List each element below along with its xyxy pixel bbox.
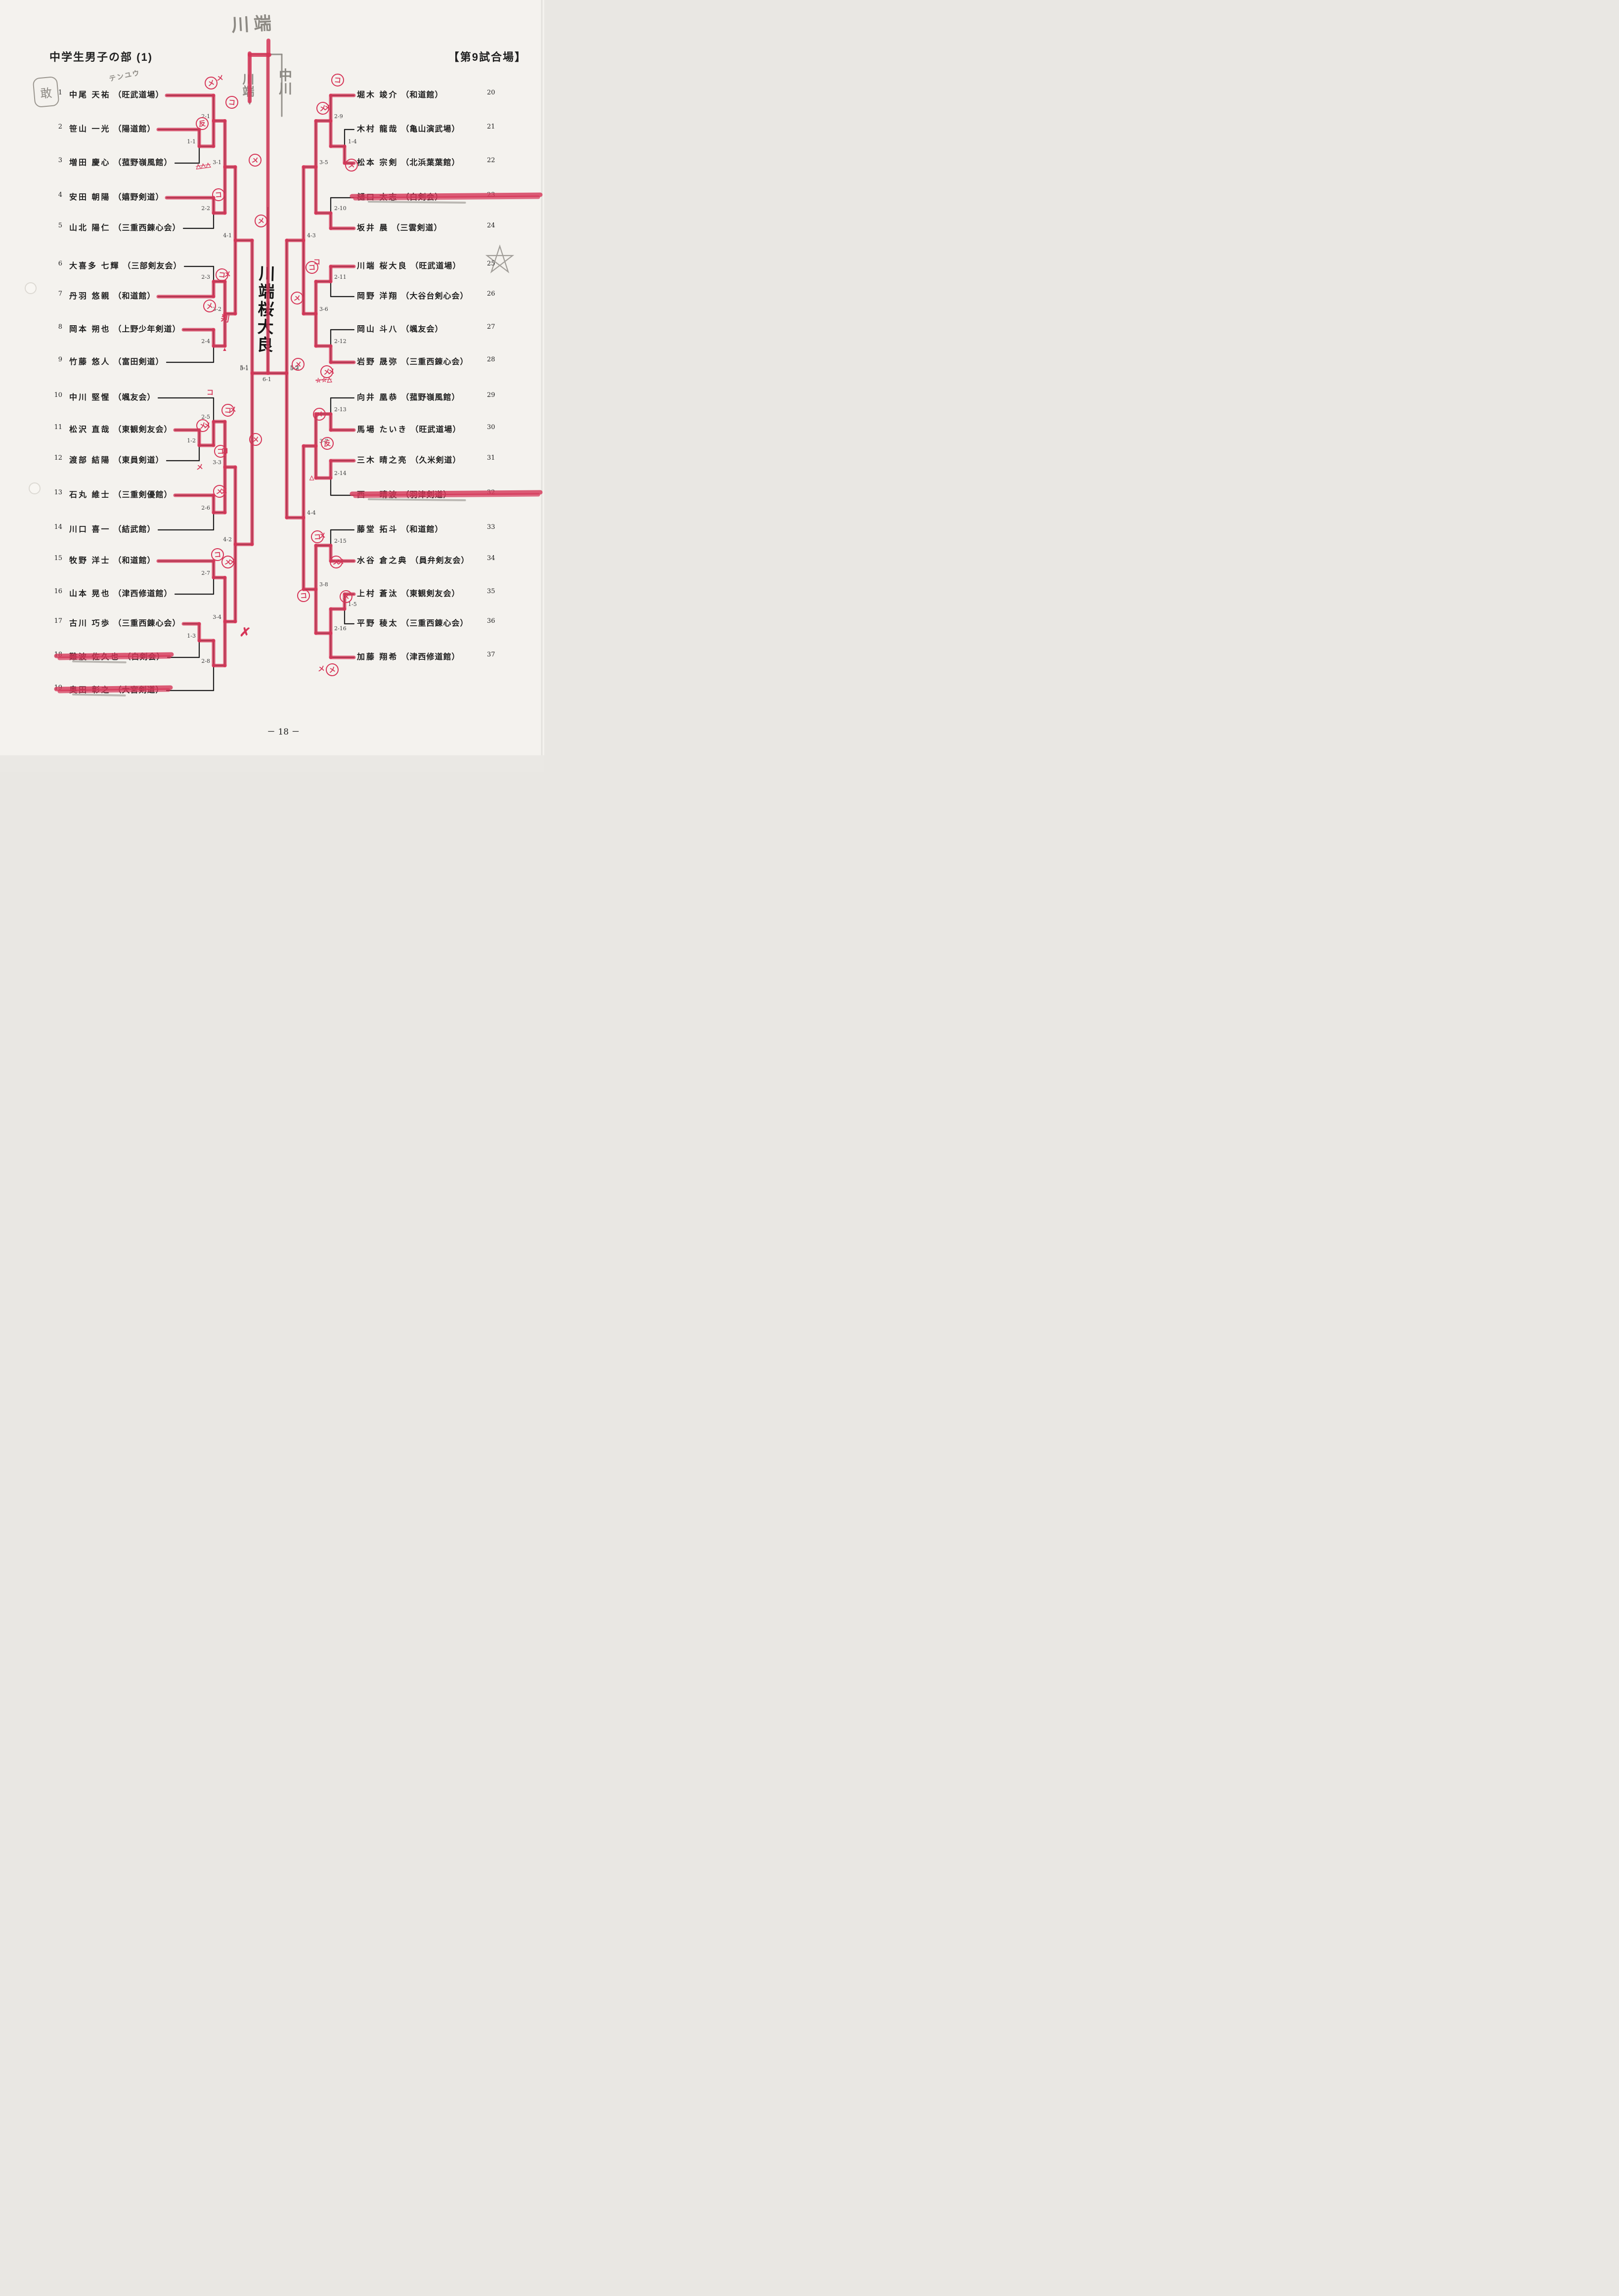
scanned-tournament-sheet: 中学生男子の部 (1) 【第9試合場】 － 18 － 川端 川端 中川 川端桜大… <box>0 0 544 772</box>
score-mark-men: メ <box>229 406 236 413</box>
score-mark-men: メ <box>291 357 305 371</box>
score-mark-kote: コ <box>207 389 214 396</box>
score-mark-men: メ <box>248 153 262 167</box>
score-mark-men: メ <box>325 663 340 677</box>
annotation-red-struck-text: ☆☆△ <box>315 376 332 384</box>
annotation-red-text: △ <box>309 475 314 480</box>
score-mark-men: メ <box>196 464 203 471</box>
annotation-red-text: 判 <box>220 314 230 324</box>
score-mark-hansoku: 反 <box>320 436 335 451</box>
score-mark-men: メ <box>324 104 331 111</box>
annotation-red-struck-text: △△△ <box>195 161 211 170</box>
score-mark-kote: コ <box>297 589 310 603</box>
score-mark-men: メ <box>203 299 217 313</box>
score-mark-men: メ <box>328 368 335 375</box>
score-mark-men: メ <box>339 590 353 604</box>
annotation-red-text: ▲ <box>222 347 227 352</box>
score-mark-men: メ <box>318 665 325 672</box>
score-mark-kote: コ <box>313 259 320 265</box>
score-mark-men: メ <box>255 215 267 227</box>
score-mark-men: メ <box>217 75 223 82</box>
score-mark-men: メ <box>319 532 326 539</box>
score-mark-men: メ <box>312 407 326 421</box>
score-mark-men: メ <box>220 488 227 495</box>
score-mark-men: メ <box>249 433 263 447</box>
score-mark-kote: コ <box>221 447 228 454</box>
score-mark-men: メ <box>337 559 344 565</box>
score-mark-kote: コ <box>225 95 239 109</box>
score-mark-men: メ <box>345 158 358 172</box>
annotation-red-text: ✗ <box>239 625 251 640</box>
score-mark-kote: コ <box>331 73 345 87</box>
score-mark-kote: コ <box>212 188 225 202</box>
score-mark-men: メ <box>229 559 236 565</box>
score-mark-men: メ <box>204 422 211 429</box>
score-mark-hansoku: 反 <box>195 117 209 130</box>
score-marks-layer: メメコ反メコメコメメココメメメメココメメメコメメコメメメココメメメメ反メコメメメ… <box>0 0 544 772</box>
score-mark-men: メ <box>224 271 231 278</box>
score-mark-men: メ <box>290 291 305 305</box>
